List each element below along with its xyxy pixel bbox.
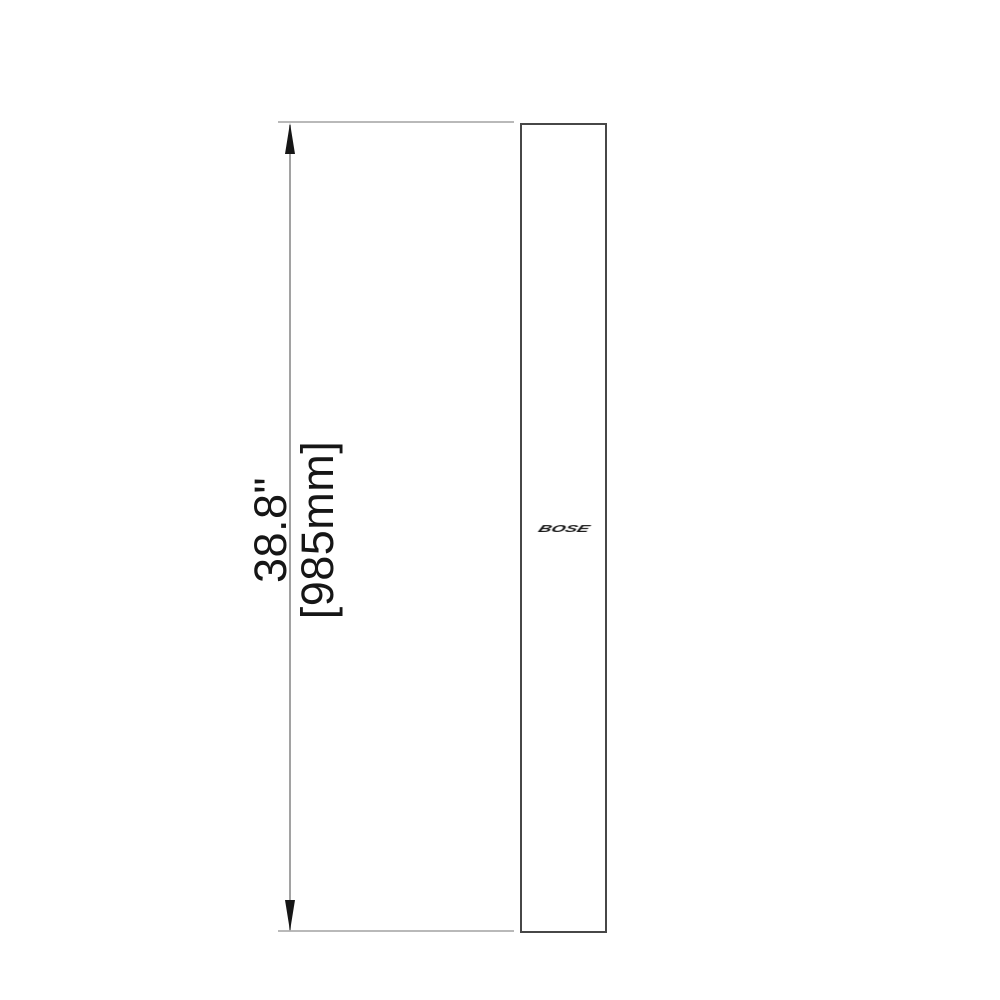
arrow-down-icon xyxy=(285,900,295,931)
dimension-value-inches: 38.8" xyxy=(248,441,295,620)
extension-line-bottom xyxy=(278,930,514,932)
dimension-drawing-canvas: 38.8" [985mm] BOSE xyxy=(0,0,1000,1000)
dimension-label: 38.8" [985mm] xyxy=(248,441,342,620)
speaker-outline: BOSE xyxy=(520,123,607,933)
arrow-up-icon xyxy=(285,123,295,154)
bose-logo: BOSE xyxy=(536,523,592,535)
dimension-value-millimeters: [985mm] xyxy=(295,441,342,620)
extension-line-top xyxy=(278,121,514,123)
